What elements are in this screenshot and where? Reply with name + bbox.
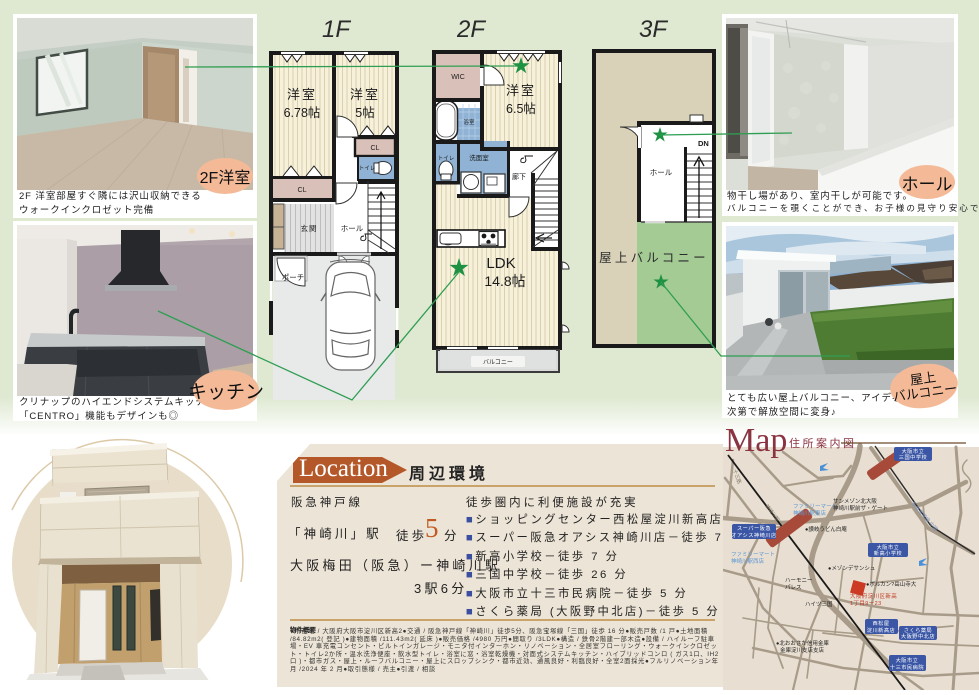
svg-text:神崎川駅西店: 神崎川駅西店 — [731, 557, 765, 565]
svg-text:神崎川駅前ザ・ゲート: 神崎川駅前ザ・ゲート — [833, 504, 888, 512]
svg-text:ファミリーマート: ファミリーマート — [731, 551, 775, 558]
svg-text:●メゾンデサンシュ: ●メゾンデサンシュ — [828, 564, 875, 572]
svg-text:大阪府淀川区新高: 大阪府淀川区新高 — [850, 592, 897, 600]
svg-text:トイレ: トイレ — [359, 166, 376, 172]
svg-text:サンメゾン北大阪: サンメゾン北大阪 — [833, 497, 877, 505]
svg-text:WIC: WIC — [451, 74, 465, 81]
svg-text:●讃岐うどん白庵: ●讃岐うどん白庵 — [805, 525, 847, 533]
svg-text:スーパー阪急: スーパー阪急 — [737, 524, 771, 532]
svg-text:トイレ: トイレ — [438, 156, 455, 162]
svg-text:CL: CL — [371, 145, 380, 152]
svg-text:オアシス神崎川店: オアシス神崎川店 — [731, 531, 776, 539]
svg-text:金庫淀川支店支店: 金庫淀川支店支店 — [780, 646, 825, 654]
svg-text:大阪市立: 大阪市立 — [896, 656, 919, 664]
svg-text:玄関: 玄関 — [301, 223, 318, 233]
svg-text:洋室: 洋室 — [350, 87, 380, 102]
svg-text:ポーチ: ポーチ — [282, 273, 305, 282]
svg-text:大阪市立: 大阪市立 — [877, 543, 900, 551]
svg-text:廊下: 廊下 — [512, 172, 526, 181]
svg-text:ハーモニー: ハーモニー — [785, 577, 813, 584]
svg-text:神崎川駅東店: 神崎川駅東店 — [793, 509, 827, 517]
svg-text:ファミリーマート: ファミリーマート — [793, 503, 837, 510]
svg-text:6.78帖: 6.78帖 — [284, 105, 321, 120]
svg-text:LDK: LDK — [486, 255, 515, 272]
svg-text:洋室: 洋室 — [506, 83, 536, 98]
svg-text:CL: CL — [298, 187, 307, 194]
svg-text:ホール: ホール — [650, 168, 673, 177]
svg-text:屋上バルコニー: 屋上バルコニー — [599, 251, 709, 265]
svg-text:さくら薬局: さくら薬局 — [904, 626, 932, 634]
svg-text:5帖: 5帖 — [355, 105, 374, 120]
svg-text:1丁目9ー23: 1丁目9ー23 — [850, 600, 882, 607]
svg-text:西松屋: 西松屋 — [872, 619, 889, 627]
svg-text:三国中学校: 三国中学校 — [899, 453, 927, 461]
svg-text:ハイツ三国: ハイツ三国 — [805, 601, 833, 608]
svg-text:14.8帖: 14.8帖 — [484, 273, 525, 289]
svg-text:浴室: 浴室 — [463, 118, 475, 126]
svg-text:●北おおさか信用金庫: ●北おおさか信用金庫 — [776, 639, 829, 647]
svg-text:バルコニー: バルコニー — [483, 359, 513, 366]
svg-text:大阪市立: 大阪市立 — [902, 447, 925, 455]
svg-text:6.5帖: 6.5帖 — [506, 101, 536, 116]
svg-text:DN: DN — [698, 139, 709, 148]
svg-text:洗面室: 洗面室 — [469, 153, 489, 162]
svg-text:洋室: 洋室 — [287, 87, 317, 102]
svg-text:十三市民病院: 十三市民病院 — [890, 663, 924, 671]
svg-text:ホール: ホール — [341, 224, 364, 233]
svg-text:大阪野中北店: 大阪野中北店 — [901, 632, 935, 640]
svg-text:新高小学校: 新高小学校 — [874, 549, 902, 557]
svg-text:パレス: パレス — [785, 584, 802, 591]
svg-text:Map: Map — [725, 422, 787, 459]
svg-text:●ボルカン?岳山寺大: ●ボルカン?岳山寺大 — [866, 580, 917, 588]
svg-text:淀川新高店: 淀川新高店 — [867, 626, 895, 634]
